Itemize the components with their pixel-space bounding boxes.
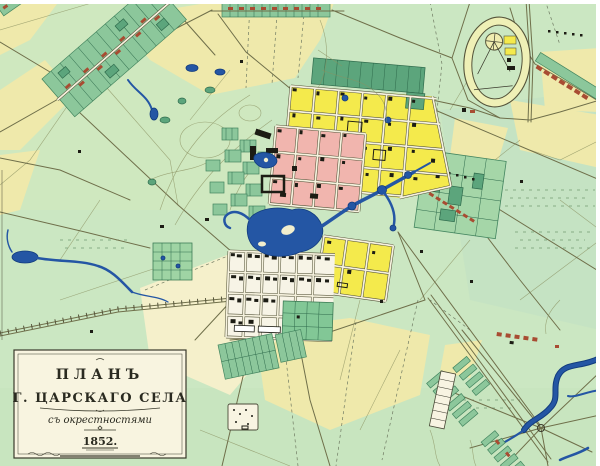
cartouche-title: ПЛАНЪ (56, 367, 145, 383)
nursery-grid (153, 243, 192, 280)
town-pond (342, 95, 348, 101)
town-pond (385, 117, 391, 123)
cartouche-year: 1852. (83, 435, 117, 448)
cartouche-subtitle: Г. ЦАРСКАГО СЕЛА (13, 391, 188, 406)
town-pink-quarters (269, 126, 365, 212)
cartouche-note: съ окрестностями (48, 415, 152, 426)
paper-margin-right (596, 0, 600, 466)
tsarskoye-selo-map: ПЛАНЪ Г. ЦАРСКАГО СЕЛА съ окрестностями … (0, 0, 600, 466)
paper-margin-top (0, 0, 600, 4)
town-barracks-district (226, 251, 335, 341)
map-canvas: ПЛАНЪ Г. ЦАРСКАГО СЕЛА съ окрестностями … (0, 0, 600, 466)
walled-compound (228, 404, 258, 430)
west-pond (12, 251, 38, 263)
cartouche: ПЛАНЪ Г. ЦАРСКАГО СЕЛА съ окрестностями … (13, 350, 188, 458)
